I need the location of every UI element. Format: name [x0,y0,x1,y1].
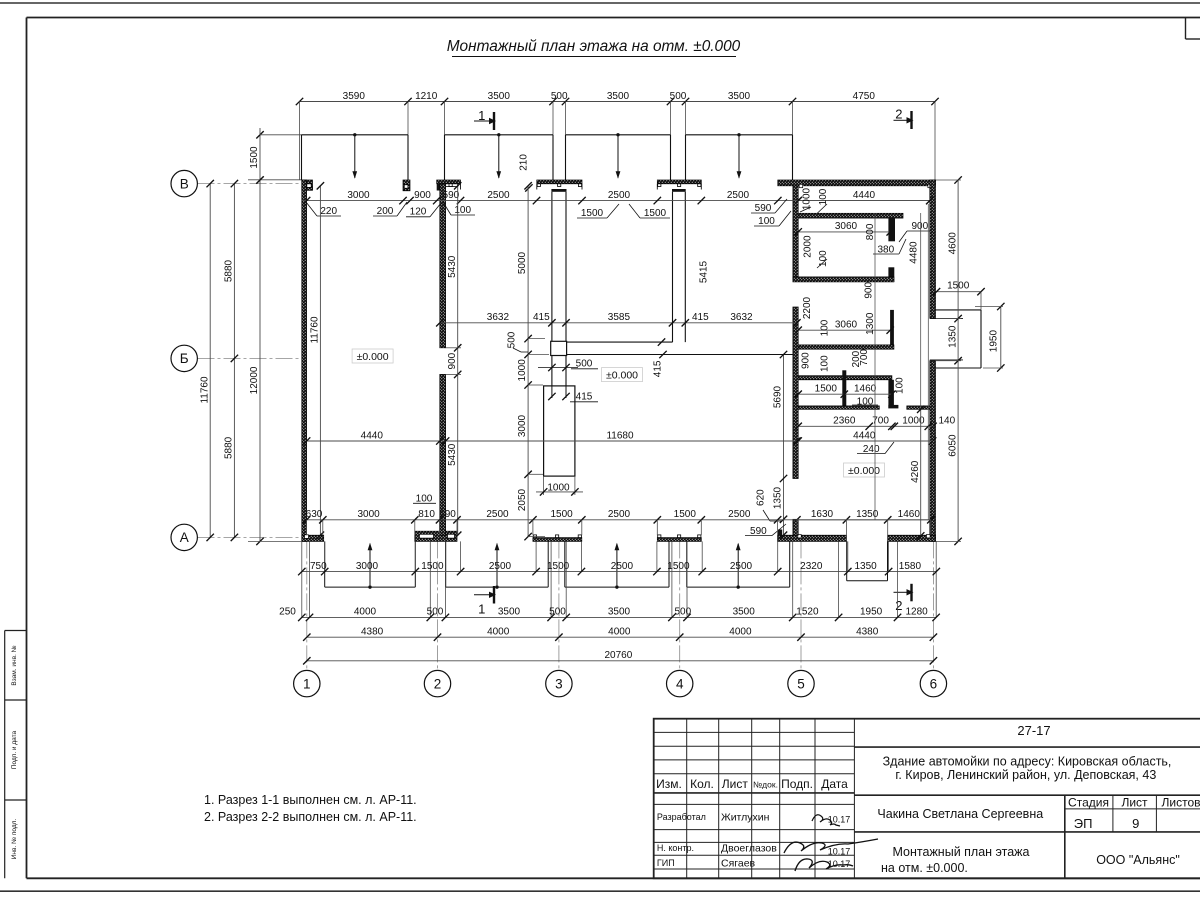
svg-text:3500: 3500 [733,607,756,618]
svg-text:415: 415 [576,392,593,403]
svg-text:1. Разрез 1-1 выполнен см. л.: 1. Разрез 1-1 выполнен см. л. АР-11. [204,793,417,807]
svg-text:Подп.: Подп. [781,777,813,791]
svg-text:2000: 2000 [803,235,814,258]
svg-text:ООО "Альянс": ООО "Альянс" [1096,853,1180,867]
svg-text:590: 590 [439,509,456,520]
svg-text:2500: 2500 [727,190,750,201]
svg-text:±0.000: ±0.000 [357,351,389,363]
svg-text:4000: 4000 [608,627,631,638]
svg-text:1500: 1500 [421,561,444,572]
svg-text:27-17: 27-17 [1017,723,1050,738]
svg-text:1460: 1460 [898,509,921,520]
svg-text:11760: 11760 [199,376,210,404]
svg-text:1500: 1500 [667,561,690,572]
svg-text:415: 415 [533,312,550,323]
svg-text:415: 415 [653,360,664,377]
svg-text:Лист: Лист [722,777,749,791]
svg-text:1: 1 [303,676,311,691]
svg-text:100: 100 [819,355,830,372]
svg-text:3590: 3590 [343,91,366,102]
svg-text:ЭП: ЭП [1074,816,1093,831]
svg-text:2500: 2500 [608,190,631,201]
svg-text:100: 100 [895,377,906,394]
svg-text:В: В [180,176,189,191]
svg-text:6050: 6050 [948,434,959,457]
svg-text:2050: 2050 [517,488,528,511]
svg-text:Изм.: Изм. [656,777,682,791]
svg-text:Б: Б [180,351,189,366]
svg-text:1300: 1300 [865,312,876,335]
svg-text:5415: 5415 [699,260,710,283]
svg-text:800: 800 [865,223,876,240]
svg-text:4260: 4260 [910,460,921,483]
svg-text:Дата: Дата [821,777,848,791]
svg-text:Разработал: Разработал [657,812,706,822]
svg-text:1000: 1000 [517,359,528,382]
svg-text:900: 900 [447,352,458,369]
svg-text:2500: 2500 [486,509,509,520]
svg-text:810: 810 [418,509,435,520]
svg-text:1500: 1500 [581,208,604,219]
svg-text:5: 5 [797,676,805,691]
svg-text:±0.000: ±0.000 [606,370,638,382]
svg-text:1500: 1500 [815,384,838,395]
svg-text:4: 4 [676,676,684,691]
svg-text:2500: 2500 [728,509,751,520]
svg-text:4000: 4000 [729,627,752,638]
svg-text:Взам. инв. №: Взам. инв. № [11,645,18,685]
svg-text:3060: 3060 [835,320,858,331]
svg-text:1500: 1500 [550,509,573,520]
svg-text:500: 500 [551,91,568,102]
svg-text:№док.: №док. [753,780,778,790]
svg-text:1950: 1950 [988,330,999,353]
svg-text:3632: 3632 [487,312,510,323]
svg-text:4480: 4480 [909,241,920,264]
svg-text:3500: 3500 [728,91,751,102]
svg-text:ГИП: ГИП [657,858,675,868]
svg-text:Н. контр.: Н. контр. [657,843,694,853]
svg-text:2320: 2320 [800,561,823,572]
svg-text:1500: 1500 [674,509,697,520]
svg-text:3000: 3000 [357,509,380,520]
svg-text:3000: 3000 [356,561,379,572]
svg-text:220: 220 [320,206,337,217]
svg-text:Подп. и дата: Подп. и дата [11,730,18,769]
svg-text:1460: 1460 [854,384,877,395]
svg-text:Кол.: Кол. [690,777,714,791]
svg-text:415: 415 [692,312,709,323]
svg-text:Здание автомойки по адресу: Ки: Здание автомойки по адресу: Кировская об… [883,755,1172,769]
svg-text:Монтажный план этажа: Монтажный план этажа [893,845,1030,859]
svg-text:3000: 3000 [347,190,370,201]
svg-text:200: 200 [377,206,394,217]
svg-text:1350: 1350 [948,325,959,348]
svg-text:4440: 4440 [853,430,876,441]
svg-text:700: 700 [859,349,870,366]
svg-text:140: 140 [938,416,955,427]
svg-text:590: 590 [750,526,767,537]
svg-text:620: 620 [756,489,767,506]
svg-text:210: 210 [518,154,529,171]
svg-text:500: 500 [670,91,687,102]
svg-text:3: 3 [555,676,563,691]
svg-text:590: 590 [755,203,772,214]
svg-text:Монтажный план этажа на отм. ±: Монтажный план этажа на отм. ±0.000 [447,38,741,55]
svg-text:1580: 1580 [899,561,922,572]
svg-text:100: 100 [454,205,471,216]
svg-text:100: 100 [818,188,829,205]
svg-text:1520: 1520 [796,607,819,618]
svg-text:500: 500 [549,607,566,618]
svg-text:100: 100 [819,319,830,336]
svg-text:2500: 2500 [487,190,510,201]
svg-text:1210: 1210 [415,91,438,102]
svg-text:100: 100 [818,250,829,267]
svg-text:750: 750 [310,561,327,572]
svg-text:Чакина Светлана Сергеевна: Чакина Светлана Сергеевна [877,807,1043,821]
svg-text:5430: 5430 [447,255,458,278]
svg-text:2360: 2360 [833,416,856,427]
svg-text:Сягаев: Сягаев [721,857,756,869]
svg-text:1: 1 [478,602,485,617]
svg-text:20760: 20760 [604,650,632,661]
svg-text:900: 900 [801,352,812,369]
svg-text:2: 2 [895,107,902,122]
svg-text:3500: 3500 [608,607,631,618]
svg-text:5690: 5690 [773,385,784,408]
svg-text:250: 250 [279,607,296,618]
svg-text:4380: 4380 [856,627,879,638]
svg-text:4600: 4600 [948,232,959,255]
svg-text:120: 120 [410,207,427,218]
svg-text:3500: 3500 [607,91,630,102]
svg-text:4000: 4000 [354,607,377,618]
svg-text:г. Киров, Ленинский район, ул.: г. Киров, Ленинский район, ул. Деповская… [895,768,1156,782]
svg-text:10.17: 10.17 [828,846,851,856]
svg-text:А: А [180,530,189,545]
svg-text:4750: 4750 [853,91,876,102]
svg-text:2200: 2200 [802,296,813,319]
svg-text:500: 500 [674,607,691,618]
svg-text:2500: 2500 [489,561,512,572]
svg-text:2500: 2500 [730,561,753,572]
svg-text:2: 2 [434,676,442,691]
svg-text:3632: 3632 [730,312,753,323]
svg-text:1350: 1350 [854,561,877,572]
svg-text:500: 500 [576,359,593,370]
svg-text:Двоеглазов: Двоеглазов [721,843,777,855]
svg-text:2: 2 [895,598,902,613]
svg-text:3500: 3500 [488,91,511,102]
svg-text:12000: 12000 [249,366,260,394]
svg-text:5000: 5000 [517,251,528,274]
svg-text:Стадия: Стадия [1068,795,1109,809]
svg-text:3585: 3585 [608,312,631,323]
svg-text:4440: 4440 [361,430,384,441]
svg-text:1630: 1630 [811,509,834,520]
svg-text:4440: 4440 [853,190,876,201]
svg-text:1350: 1350 [856,509,879,520]
svg-text:2500: 2500 [608,509,631,520]
svg-text:500: 500 [427,607,444,618]
svg-text:500: 500 [507,331,518,348]
svg-text:1280: 1280 [905,607,928,618]
svg-text:1350: 1350 [773,486,784,509]
svg-text:6: 6 [930,676,938,691]
svg-text:Листов: Листов [1162,795,1200,809]
svg-text:на отм. ±0.000.: на отм. ±0.000. [881,861,968,875]
svg-text:5430: 5430 [447,443,458,466]
svg-text:2. Разрез 2-2 выполнен см. л.: 2. Разрез 2-2 выполнен см. л. АР-11. [204,810,417,824]
svg-text:590: 590 [443,190,460,201]
svg-text:5880: 5880 [224,436,235,459]
svg-text:9: 9 [1132,816,1139,831]
svg-text:1500: 1500 [249,146,260,169]
svg-text:4000: 4000 [487,627,510,638]
svg-text:3000: 3000 [517,414,528,437]
svg-text:3500: 3500 [498,607,521,618]
svg-text:1500: 1500 [644,208,667,219]
svg-text:Инв. № подл.: Инв. № подл. [11,819,18,860]
svg-text:3060: 3060 [835,221,858,232]
svg-text:1500: 1500 [547,561,570,572]
svg-text:Житлухин: Житлухин [721,812,770,824]
svg-text:Лист: Лист [1121,795,1148,809]
svg-text:1000: 1000 [902,416,925,427]
svg-text:5880: 5880 [224,259,235,282]
svg-text:1000: 1000 [802,187,813,210]
svg-text:1950: 1950 [860,607,883,618]
svg-text:1000: 1000 [547,483,570,494]
svg-text:100: 100 [758,216,775,227]
svg-text:900: 900 [414,190,431,201]
svg-text:900: 900 [911,221,928,232]
svg-text:2500: 2500 [611,561,634,572]
svg-text:11680: 11680 [606,430,634,441]
svg-text:4380: 4380 [361,627,384,638]
svg-text:900: 900 [863,282,874,299]
svg-text:100: 100 [857,397,874,408]
svg-text:11760: 11760 [310,316,321,344]
svg-text:630: 630 [306,509,323,520]
